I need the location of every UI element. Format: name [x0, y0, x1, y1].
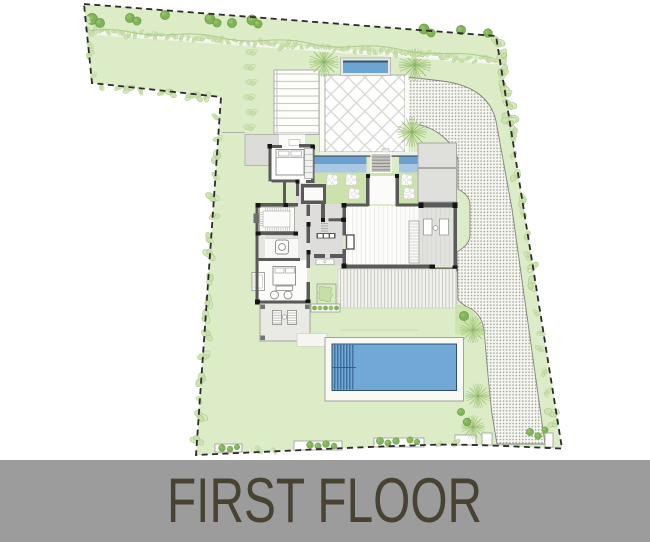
svg-text:FIRST FLOOR: FIRST FLOOR — [167, 466, 482, 536]
